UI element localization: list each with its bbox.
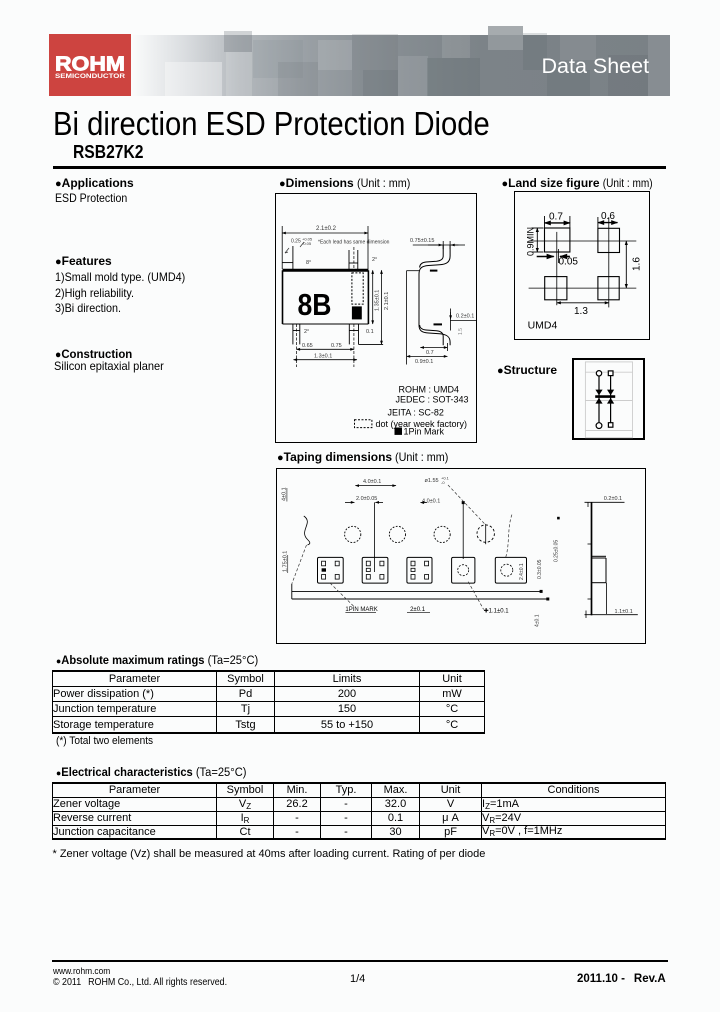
svg-text:*Each lead has same dimension: *Each lead has same dimension [318, 239, 390, 245]
svg-text:-0.05: -0.05 [302, 241, 312, 246]
svg-text:0.75: 0.75 [331, 343, 342, 349]
svg-text:0.1: 0.1 [366, 329, 374, 335]
svg-text:0.05: 0.05 [558, 257, 578, 268]
svg-text:0.65: 0.65 [302, 343, 313, 349]
svg-text:JEDEC : SOT-343: JEDEC : SOT-343 [395, 394, 468, 404]
svg-text:0.7: 0.7 [426, 350, 434, 356]
svg-text:0.3±0.05: 0.3±0.05 [537, 559, 543, 579]
svg-text:4.0±0.1: 4.0±0.1 [363, 479, 381, 485]
svg-text:2°: 2° [372, 257, 377, 263]
svg-text:0.75±0.15: 0.75±0.15 [410, 238, 434, 244]
svg-text:1PIN MARK: 1PIN MARK [345, 607, 377, 613]
svg-text:2.1±0.2: 2.1±0.2 [316, 226, 337, 232]
svg-text:SEMICONDUCTOR: SEMICONDUCTOR [55, 73, 126, 80]
svg-text:1.3±0.1: 1.3±0.1 [314, 353, 332, 359]
svg-text:0.25±0.05: 0.25±0.05 [553, 540, 559, 562]
svg-text:1.5: 1.5 [458, 327, 464, 334]
svg-text:1.1±0.1: 1.1±0.1 [614, 609, 632, 615]
svg-text:✚1.1±0.1: ✚1.1±0.1 [483, 608, 509, 615]
svg-text:2±0.1: 2±0.1 [410, 607, 426, 613]
svg-text:0.9±0.1: 0.9±0.1 [415, 359, 433, 365]
svg-text:2.4±0.1: 2.4±0.1 [519, 563, 525, 580]
svg-text:2°: 2° [304, 329, 309, 335]
svg-text:1Pin Mark: 1Pin Mark [403, 426, 444, 436]
svg-text:0.25: 0.25 [291, 238, 301, 244]
svg-text:-0: -0 [441, 480, 445, 485]
svg-text:2.1±0.1: 2.1±0.1 [383, 291, 389, 309]
svg-text:4±0.1: 4±0.1 [534, 614, 540, 627]
svg-text:8B: 8B [297, 287, 331, 322]
svg-text:4.0±0.1: 4.0±0.1 [422, 499, 440, 505]
svg-text:0.2±0.1: 0.2±0.1 [456, 313, 474, 319]
svg-text:ø1.55: ø1.55 [424, 478, 438, 484]
svg-text:UMD4: UMD4 [527, 320, 557, 332]
svg-text:0.2±0.1: 0.2±0.1 [603, 496, 621, 502]
svg-text:1.6: 1.6 [631, 257, 642, 271]
svg-text:1.3: 1.3 [574, 306, 588, 317]
svg-text:8°: 8° [306, 260, 311, 266]
svg-text:0.6: 0.6 [601, 211, 615, 222]
svg-text:ROHM : UMD4: ROHM : UMD4 [398, 384, 459, 394]
svg-text:1.35±0.1: 1.35±0.1 [374, 289, 380, 310]
svg-text:2.0±0.05: 2.0±0.05 [356, 496, 377, 502]
svg-text:JEITA : SC-82: JEITA : SC-82 [387, 407, 443, 417]
svg-text:0.7: 0.7 [549, 212, 563, 223]
